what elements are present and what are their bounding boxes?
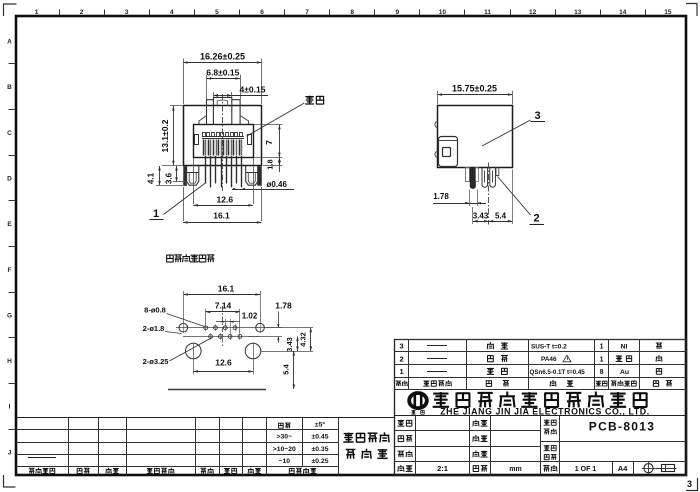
svg-text:3: 3 bbox=[125, 9, 129, 16]
svg-text:6: 6 bbox=[260, 9, 264, 16]
svg-text:A: A bbox=[7, 39, 12, 46]
svg-text:14: 14 bbox=[619, 9, 627, 16]
svg-text:QSn6.5-0.1T t=0.45: QSn6.5-0.1T t=0.45 bbox=[530, 369, 586, 376]
svg-text:7: 7 bbox=[264, 140, 274, 145]
svg-text:J: J bbox=[8, 449, 12, 456]
svg-text:12: 12 bbox=[529, 9, 537, 16]
svg-text:2-ø1.8: 2-ø1.8 bbox=[143, 324, 165, 333]
svg-text:9: 9 bbox=[395, 9, 399, 16]
svg-text:ø0.46: ø0.46 bbox=[267, 180, 288, 189]
svg-text:1.78: 1.78 bbox=[275, 301, 292, 311]
svg-text:H: H bbox=[7, 358, 12, 365]
svg-text:8-ø0.8: 8-ø0.8 bbox=[144, 305, 166, 314]
svg-text:PCB-8013: PCB-8013 bbox=[589, 420, 655, 434]
svg-text:4±0.15: 4±0.15 bbox=[240, 85, 266, 95]
svg-text:±5°: ±5° bbox=[315, 420, 326, 428]
svg-text:12.6: 12.6 bbox=[215, 358, 232, 368]
svg-text:1.8: 1.8 bbox=[266, 159, 275, 169]
svg-text:±0.25: ±0.25 bbox=[312, 458, 329, 465]
svg-text:B: B bbox=[7, 84, 12, 91]
svg-text:3.43: 3.43 bbox=[473, 212, 489, 221]
svg-text:2: 2 bbox=[533, 213, 539, 225]
svg-text:1: 1 bbox=[600, 356, 604, 363]
svg-text:3.6: 3.6 bbox=[165, 172, 174, 184]
svg-text:±0.35: ±0.35 bbox=[312, 446, 329, 453]
svg-text:1 OF 1: 1 OF 1 bbox=[575, 466, 597, 473]
svg-text:1: 1 bbox=[35, 9, 39, 16]
svg-text:4.1: 4.1 bbox=[147, 172, 156, 184]
svg-text:15.75±0.25: 15.75±0.25 bbox=[452, 84, 497, 94]
svg-text:SUS-T t=0.2: SUS-T t=0.2 bbox=[531, 343, 567, 350]
svg-text:C: C bbox=[7, 130, 12, 137]
svg-text:>10~20: >10~20 bbox=[273, 446, 296, 453]
svg-text:3: 3 bbox=[400, 342, 404, 351]
svg-text:E: E bbox=[7, 221, 12, 228]
svg-text:±0.45: ±0.45 bbox=[312, 434, 329, 441]
svg-text:1.02: 1.02 bbox=[242, 312, 258, 321]
svg-text:I: I bbox=[9, 404, 11, 411]
svg-text:7.14: 7.14 bbox=[215, 301, 232, 311]
svg-text:5: 5 bbox=[215, 9, 219, 16]
svg-text:5.4: 5.4 bbox=[495, 212, 507, 221]
svg-text:1: 1 bbox=[400, 367, 404, 376]
svg-text:Au: Au bbox=[620, 369, 629, 376]
svg-text:13.1±0.2: 13.1±0.2 bbox=[160, 119, 170, 152]
svg-text:16.1: 16.1 bbox=[213, 211, 230, 221]
svg-text:2-ø3.25: 2-ø3.25 bbox=[143, 357, 169, 366]
svg-text:~10: ~10 bbox=[279, 458, 291, 465]
svg-text:3: 3 bbox=[534, 110, 540, 122]
svg-text:1.78: 1.78 bbox=[433, 192, 449, 201]
svg-text:2: 2 bbox=[400, 354, 404, 363]
svg-text:PA46: PA46 bbox=[541, 356, 557, 363]
svg-text:10: 10 bbox=[439, 9, 447, 16]
svg-text:3.43: 3.43 bbox=[285, 337, 294, 352]
svg-text:7: 7 bbox=[305, 9, 309, 16]
svg-text:15: 15 bbox=[664, 9, 672, 16]
svg-text:8: 8 bbox=[350, 9, 354, 16]
svg-text:1: 1 bbox=[600, 344, 604, 351]
svg-text:NI: NI bbox=[621, 344, 628, 351]
svg-text:11: 11 bbox=[484, 9, 491, 16]
svg-text:6.8±0.15: 6.8±0.15 bbox=[206, 68, 239, 78]
svg-text:4: 4 bbox=[170, 9, 174, 16]
svg-text:12.6: 12.6 bbox=[217, 194, 234, 204]
svg-text:2:1: 2:1 bbox=[437, 464, 448, 473]
svg-text:16.26±0.25: 16.26±0.25 bbox=[200, 52, 245, 62]
svg-text:A4: A4 bbox=[618, 464, 628, 473]
svg-text:D: D bbox=[7, 175, 12, 182]
svg-text:4.32: 4.32 bbox=[299, 332, 308, 347]
svg-text:16.1: 16.1 bbox=[218, 284, 235, 294]
svg-text:F: F bbox=[8, 267, 12, 274]
svg-text:3: 3 bbox=[687, 479, 692, 489]
svg-text:G: G bbox=[7, 312, 12, 319]
svg-text:2: 2 bbox=[80, 9, 84, 16]
svg-text:8: 8 bbox=[600, 369, 604, 376]
svg-text:1: 1 bbox=[153, 208, 159, 220]
svg-text:5.4: 5.4 bbox=[282, 363, 291, 374]
svg-text:mm: mm bbox=[509, 466, 521, 473]
svg-text:>30~: >30~ bbox=[277, 434, 293, 441]
svg-text:13: 13 bbox=[574, 9, 582, 16]
